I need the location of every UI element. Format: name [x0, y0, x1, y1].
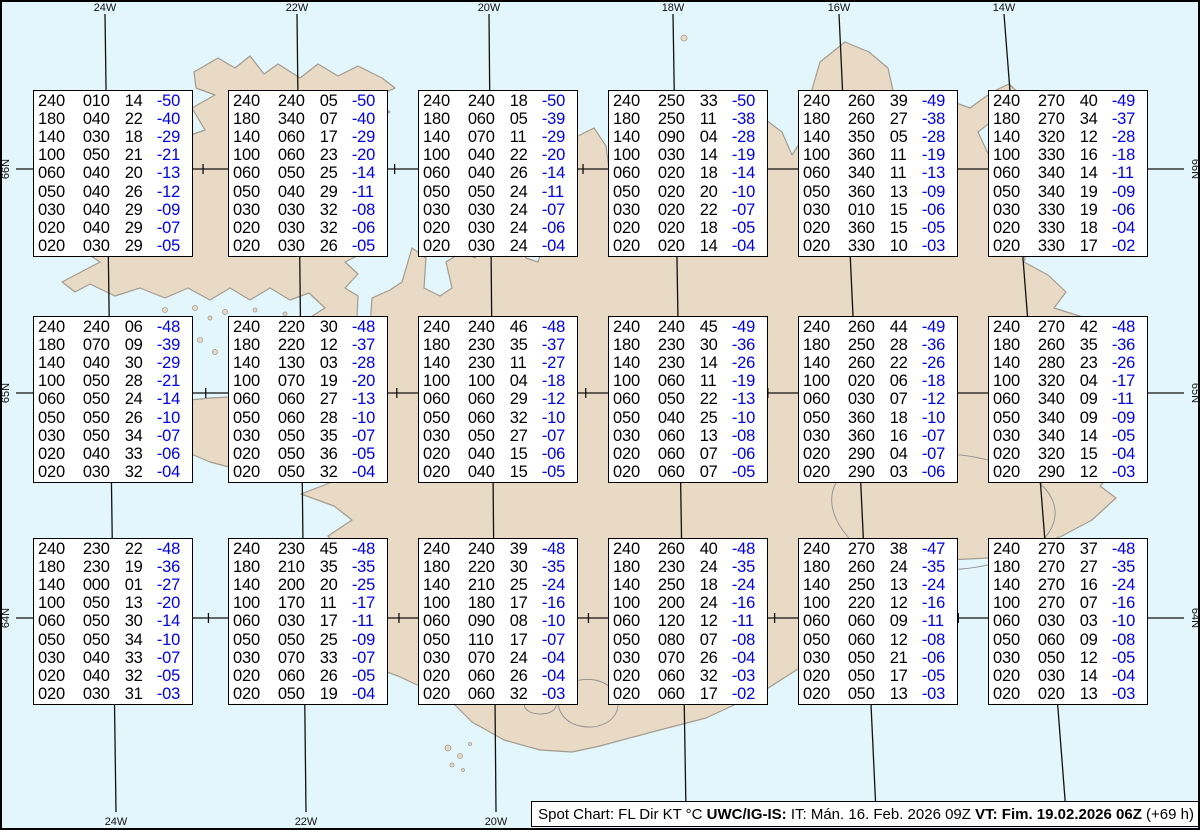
spot-data-row: 02004029-07	[38, 219, 189, 237]
spot-data-row: 10002006-18	[803, 372, 954, 390]
temperature-value: -10	[922, 409, 954, 427]
temperature-value: -18	[1112, 146, 1144, 164]
temperature-value: -10	[352, 409, 384, 427]
spot-data-row: 03005021-06	[803, 649, 954, 667]
wind-direction-value: 020	[658, 237, 700, 255]
temperature-value: -06	[542, 219, 574, 237]
temperature-value: -25	[352, 576, 384, 594]
spot-data-row: 18023024-35	[613, 558, 764, 576]
wind-direction-value: 070	[658, 649, 700, 667]
wind-direction-value: 250	[658, 92, 700, 110]
spot-data-row: 24027038-47	[803, 540, 954, 558]
temperature-value: -18	[542, 372, 574, 390]
temperature-value: -05	[352, 667, 384, 685]
wind-direction-value: 010	[83, 92, 125, 110]
wind-direction-value: 090	[468, 612, 510, 630]
wind-speed-value: 24	[510, 649, 542, 667]
spot-data-row: 14025013-24	[803, 576, 954, 594]
flight-level-value: 060	[423, 390, 468, 408]
wind-direction-value: 070	[278, 372, 320, 390]
wind-speed-value: 07	[890, 390, 922, 408]
temperature-value: -07	[732, 201, 764, 219]
spot-data-row: 02033010-03	[803, 237, 954, 255]
wind-direction-value: 050	[278, 427, 320, 445]
spot-data-row: 18022012-37	[233, 336, 384, 354]
temperature-value: -03	[157, 685, 189, 703]
temperature-value: -50	[542, 92, 574, 110]
wind-direction-value: 220	[278, 336, 320, 354]
wind-speed-value: 46	[510, 318, 542, 336]
flight-level-value: 020	[803, 667, 848, 685]
spot-data-row: 03003024-07	[423, 201, 574, 219]
wind-speed-value: 17	[320, 612, 352, 630]
wind-direction-value: 030	[278, 612, 320, 630]
flight-level-value: 140	[233, 576, 278, 594]
temperature-value: -10	[542, 409, 574, 427]
flight-level-value: 030	[38, 427, 83, 445]
wind-direction-value: 030	[468, 219, 510, 237]
flight-level-value: 030	[803, 427, 848, 445]
spot-data-row: 03034014-05	[993, 427, 1144, 445]
wind-speed-value: 27	[890, 110, 922, 128]
spot-data-row: 18007009-39	[38, 336, 189, 354]
wind-speed-value: 36	[320, 445, 352, 463]
spot-data-row: 24027040-49	[993, 92, 1144, 110]
spot-data-row: 05005024-11	[423, 183, 574, 201]
flight-level-value: 050	[423, 631, 468, 649]
spot-data-row: 18004022-40	[38, 110, 189, 128]
spot-data-row: 14023014-26	[613, 354, 764, 372]
flight-level-value: 050	[423, 183, 468, 201]
flight-level-value: 050	[803, 183, 848, 201]
wind-speed-value: 27	[1080, 558, 1112, 576]
spot-data-row: 03004029-09	[38, 201, 189, 219]
wind-speed-value: 19	[1080, 183, 1112, 201]
wind-direction-value: 260	[848, 354, 890, 372]
wind-speed-value: 23	[320, 146, 352, 164]
flight-level-value: 100	[233, 594, 278, 612]
flight-level-value: 030	[993, 201, 1038, 219]
temperature-value: -35	[922, 558, 954, 576]
spot-data-row: 03001015-06	[803, 201, 954, 219]
flight-level-value: 030	[613, 201, 658, 219]
spot-data-row: 02002018-05	[613, 219, 764, 237]
temperature-value: -07	[542, 201, 574, 219]
spot-data-row: 18026035-36	[993, 336, 1144, 354]
flight-level-value: 180	[613, 110, 658, 128]
temperature-value: -27	[542, 354, 574, 372]
temperature-value: -20	[352, 146, 384, 164]
wind-direction-value: 110	[468, 631, 510, 649]
temperature-value: -07	[352, 649, 384, 667]
flight-level-value: 180	[423, 336, 468, 354]
wind-direction-value: 030	[83, 237, 125, 255]
wind-speed-value: 20	[700, 183, 732, 201]
wind-direction-value: 050	[83, 594, 125, 612]
spot-data-row: 05006032-10	[423, 409, 574, 427]
wind-direction-value: 240	[83, 318, 125, 336]
wind-direction-value: 320	[1038, 445, 1080, 463]
temperature-value: -05	[922, 667, 954, 685]
temperature-value: -16	[732, 594, 764, 612]
wind-direction-value: 030	[1038, 667, 1080, 685]
spot-data-row: 06003017-11	[233, 612, 384, 630]
spot-data-row: 18027034-37	[993, 110, 1144, 128]
wind-direction-value: 050	[278, 463, 320, 481]
spot-data-row: 14000001-27	[38, 576, 189, 594]
flight-level-value: 020	[233, 667, 278, 685]
temperature-value: -29	[542, 128, 574, 146]
temperature-value: -29	[157, 354, 189, 372]
flight-level-value: 030	[38, 649, 83, 667]
wind-direction-value: 030	[278, 201, 320, 219]
spot-data-row: 06005022-13	[613, 390, 764, 408]
wind-direction-value: 040	[83, 445, 125, 463]
flight-level-value: 140	[803, 576, 848, 594]
wind-speed-value: 30	[510, 558, 542, 576]
wind-direction-value: 050	[83, 427, 125, 445]
wind-speed-value: 27	[320, 390, 352, 408]
temperature-value: -48	[542, 540, 574, 558]
temperature-value: -05	[1112, 649, 1144, 667]
spot-data-row: 05034009-09	[993, 409, 1144, 427]
spot-data-row: 02006026-04	[423, 667, 574, 685]
spot-data-row: 14021025-24	[423, 576, 574, 594]
spot-data-box: 24024006-4818007009-3914004030-291000502…	[33, 316, 193, 483]
spot-data-row: 06012012-11	[613, 612, 764, 630]
wind-direction-value: 340	[848, 164, 890, 182]
flight-level-value: 240	[423, 540, 468, 558]
wind-speed-value: 16	[890, 427, 922, 445]
spot-data-row: 02006032-03	[613, 667, 764, 685]
flight-level-value: 030	[233, 427, 278, 445]
flight-level-value: 100	[423, 594, 468, 612]
wind-speed-value: 32	[510, 409, 542, 427]
wind-direction-value: 040	[468, 146, 510, 164]
spot-data-row: 10006023-20	[233, 146, 384, 164]
spot-data-box: 24022030-4818022012-3714013003-281000701…	[228, 316, 388, 483]
flight-level-value: 180	[613, 558, 658, 576]
temperature-value: -08	[352, 201, 384, 219]
wind-speed-value: 45	[320, 540, 352, 558]
spot-data-box: 24024018-5018006005-3914007011-291000402…	[418, 90, 578, 257]
flight-level-value: 020	[233, 463, 278, 481]
spot-data-box: 24001014-5018004022-4014003018-291000502…	[33, 90, 193, 257]
temperature-value: -14	[157, 612, 189, 630]
temperature-value: -04	[352, 685, 384, 703]
flight-level-value: 180	[38, 336, 83, 354]
wind-direction-value: 060	[278, 390, 320, 408]
wind-direction-value: 230	[658, 558, 700, 576]
wind-direction-value: 240	[468, 92, 510, 110]
wind-direction-value: 330	[848, 237, 890, 255]
wind-direction-value: 340	[278, 110, 320, 128]
temperature-value: -06	[732, 445, 764, 463]
wind-direction-value: 120	[658, 612, 700, 630]
wind-speed-value: 32	[320, 201, 352, 219]
wind-speed-value: 33	[320, 649, 352, 667]
flight-level-value: 020	[38, 219, 83, 237]
meridian-label-top: 20W	[478, 2, 501, 14]
flight-level-value: 100	[38, 594, 83, 612]
temperature-value: -11	[1112, 390, 1144, 408]
spot-data-row: 02003031-03	[38, 685, 189, 703]
spot-data-row: 02003026-05	[233, 237, 384, 255]
spot-data-row: 02006007-05	[613, 463, 764, 481]
spot-data-row: 10007019-20	[233, 372, 384, 390]
spot-data-row: 02002013-03	[993, 685, 1144, 703]
wind-speed-value: 24	[510, 237, 542, 255]
spot-data-row: 24001014-50	[38, 92, 189, 110]
flight-level-value: 180	[803, 336, 848, 354]
flight-level-value: 240	[613, 92, 658, 110]
wind-speed-value: 19	[320, 685, 352, 703]
temperature-value: -05	[732, 219, 764, 237]
wind-direction-value: 030	[468, 237, 510, 255]
flight-level-value: 020	[993, 685, 1038, 703]
temperature-value: -11	[732, 612, 764, 630]
wind-speed-value: 03	[890, 463, 922, 481]
flight-level-value: 030	[423, 201, 468, 219]
spot-data-row: 06005030-14	[38, 612, 189, 630]
temperature-value: -39	[157, 336, 189, 354]
temperature-value: -07	[157, 219, 189, 237]
spot-data-row: 14027016-24	[993, 576, 1144, 594]
wind-direction-value: 020	[658, 164, 700, 182]
wind-speed-value: 32	[125, 463, 157, 481]
spot-data-row: 06034009-11	[993, 390, 1144, 408]
spot-data-row: 10005013-20	[38, 594, 189, 612]
meridian-label-bottom: 24W	[105, 816, 128, 828]
wind-direction-value: 030	[278, 219, 320, 237]
wind-direction-value: 320	[1038, 128, 1080, 146]
wind-direction-value: 060	[658, 372, 700, 390]
temperature-value: -03	[732, 667, 764, 685]
flight-level-value: 060	[613, 612, 658, 630]
spot-data-row: 10033016-18	[993, 146, 1144, 164]
flight-level-value: 030	[233, 649, 278, 667]
spot-data-row: 03005034-07	[38, 427, 189, 445]
wind-speed-value: 13	[700, 427, 732, 445]
spot-data-row: 03007033-07	[233, 649, 384, 667]
temperature-value: -28	[732, 128, 764, 146]
flight-level-value: 180	[993, 558, 1038, 576]
flight-level-value: 100	[613, 146, 658, 164]
flight-level-value: 060	[993, 612, 1038, 630]
wind-speed-value: 18	[700, 219, 732, 237]
spot-data-box: 24026040-4818023024-3514025018-241002002…	[608, 538, 768, 705]
flight-level-value: 140	[38, 354, 83, 372]
wind-speed-value: 24	[510, 183, 542, 201]
wind-direction-value: 030	[658, 146, 700, 164]
spot-data-row: 03005035-07	[233, 427, 384, 445]
wind-direction-value: 040	[83, 201, 125, 219]
flight-level-value: 020	[613, 463, 658, 481]
spot-data-row: 18025011-38	[613, 110, 764, 128]
spot-data-row: 02005013-03	[803, 685, 954, 703]
wind-direction-value: 020	[848, 372, 890, 390]
spot-data-row: 02005017-05	[803, 667, 954, 685]
wind-speed-value: 42	[1080, 318, 1112, 336]
spot-data-row: 06003007-12	[803, 390, 954, 408]
flight-level-value: 050	[423, 409, 468, 427]
temperature-value: -05	[352, 445, 384, 463]
wind-direction-value: 030	[83, 463, 125, 481]
temperature-value: -06	[922, 201, 954, 219]
flight-level-value: 020	[613, 445, 658, 463]
flight-level-value: 020	[993, 445, 1038, 463]
spot-data-row: 05002020-10	[613, 183, 764, 201]
temperature-value: -06	[922, 649, 954, 667]
wind-direction-value: 070	[278, 649, 320, 667]
temperature-value: -18	[922, 372, 954, 390]
wind-speed-value: 30	[125, 612, 157, 630]
flight-level-value: 020	[233, 237, 278, 255]
temperature-value: -06	[542, 445, 574, 463]
spot-data-row: 03004033-07	[38, 649, 189, 667]
wind-speed-value: 25	[510, 576, 542, 594]
meridian-label-top: 24W	[94, 2, 117, 14]
spot-data-row: 10020024-16	[613, 594, 764, 612]
spot-data-row: 02006007-06	[613, 445, 764, 463]
wind-speed-value: 24	[125, 390, 157, 408]
flight-level-value: 020	[993, 237, 1038, 255]
temperature-value: -09	[1112, 409, 1144, 427]
wind-direction-value: 220	[468, 558, 510, 576]
flight-level-value: 100	[993, 594, 1038, 612]
wind-direction-value: 320	[1038, 372, 1080, 390]
spot-data-row: 02004032-05	[38, 667, 189, 685]
wind-speed-value: 11	[700, 372, 732, 390]
temperature-value: -07	[922, 427, 954, 445]
wind-speed-value: 22	[890, 354, 922, 372]
temperature-value: -28	[922, 128, 954, 146]
flight-level-value: 050	[993, 631, 1038, 649]
flight-level-value: 240	[233, 540, 278, 558]
spot-data-row: 02004033-06	[38, 445, 189, 463]
flight-level-value: 060	[803, 390, 848, 408]
wind-speed-value: 08	[510, 612, 542, 630]
wind-direction-value: 020	[1038, 685, 1080, 703]
spot-data-box: 24024045-4918023030-3614023014-261000601…	[608, 316, 768, 483]
wind-direction-value: 070	[468, 128, 510, 146]
wind-speed-value: 07	[320, 110, 352, 128]
wind-direction-value: 050	[848, 649, 890, 667]
wind-direction-value: 290	[848, 445, 890, 463]
flight-level-value: 020	[233, 219, 278, 237]
temperature-value: -48	[1112, 318, 1144, 336]
spot-data-row: 03005027-07	[423, 427, 574, 445]
spot-data-row: 24024018-50	[423, 92, 574, 110]
wind-speed-value: 24	[510, 219, 542, 237]
flight-level-value: 140	[233, 354, 278, 372]
wind-direction-value: 270	[1038, 576, 1080, 594]
wind-direction-value: 210	[278, 558, 320, 576]
flight-level-value: 020	[38, 463, 83, 481]
flight-level-value: 030	[613, 427, 658, 445]
wind-direction-value: 050	[1038, 649, 1080, 667]
spot-data-row: 18021035-35	[233, 558, 384, 576]
wind-speed-value: 16	[1080, 146, 1112, 164]
wind-speed-value: 33	[125, 649, 157, 667]
wind-speed-value: 34	[1080, 110, 1112, 128]
chart-info-text: (+69 h)	[1142, 806, 1194, 823]
wind-speed-value: 26	[510, 164, 542, 182]
spot-data-row: 02029003-06	[803, 463, 954, 481]
wind-speed-value: 04	[1080, 372, 1112, 390]
temperature-value: -04	[542, 667, 574, 685]
temperature-value: -49	[732, 318, 764, 336]
flight-level-value: 180	[423, 110, 468, 128]
flight-level-value: 050	[803, 409, 848, 427]
flight-level-value: 140	[803, 354, 848, 372]
wind-speed-value: 14	[700, 354, 732, 372]
flight-level-value: 060	[993, 390, 1038, 408]
wind-speed-value: 26	[700, 649, 732, 667]
wind-speed-value: 11	[510, 128, 542, 146]
wind-direction-value: 240	[658, 318, 700, 336]
spot-data-row: 10005028-21	[38, 372, 189, 390]
temperature-value: -28	[352, 354, 384, 372]
wind-direction-value: 270	[1038, 540, 1080, 558]
temperature-value: -03	[922, 237, 954, 255]
wind-direction-value: 330	[1038, 201, 1080, 219]
spot-data-row: 02002014-04	[613, 237, 764, 255]
wind-direction-value: 050	[83, 409, 125, 427]
wind-direction-value: 040	[83, 110, 125, 128]
wind-direction-value: 340	[1038, 409, 1080, 427]
temperature-value: -27	[157, 576, 189, 594]
weather-spot-chart: 24W24W22W22W20W20W18W18W16W16W14W14W66N6…	[0, 0, 1200, 830]
meridian-label-top: 18W	[662, 2, 685, 14]
temperature-value: -08	[732, 631, 764, 649]
flight-level-value: 140	[803, 128, 848, 146]
flight-level-value: 100	[803, 146, 848, 164]
flight-level-value: 020	[803, 219, 848, 237]
temperature-value: -20	[352, 372, 384, 390]
wind-speed-value: 26	[510, 667, 542, 685]
spot-data-row: 10010004-18	[423, 372, 574, 390]
wind-speed-value: 18	[125, 128, 157, 146]
spot-data-row: 02033018-04	[993, 219, 1144, 237]
wind-speed-value: 27	[510, 427, 542, 445]
spot-data-row: 06006029-12	[423, 390, 574, 408]
wind-speed-value: 09	[1080, 631, 1112, 649]
spot-data-row: 02029004-07	[803, 445, 954, 463]
temperature-value: -11	[352, 612, 384, 630]
wind-direction-value: 260	[848, 558, 890, 576]
wind-direction-value: 040	[83, 354, 125, 372]
wind-direction-value: 050	[278, 685, 320, 703]
spot-data-row: 05004025-10	[613, 409, 764, 427]
spot-data-row: 06003003-10	[993, 612, 1144, 630]
wind-speed-value: 22	[700, 201, 732, 219]
chart-info-bold-text: UWC/IG-IS:	[707, 806, 787, 823]
temperature-value: -10	[732, 409, 764, 427]
flight-level-value: 020	[613, 237, 658, 255]
flight-level-value: 060	[38, 390, 83, 408]
wind-direction-value: 330	[1038, 219, 1080, 237]
spot-data-row: 10036011-19	[803, 146, 954, 164]
flight-level-value: 180	[803, 110, 848, 128]
wind-speed-value: 18	[700, 164, 732, 182]
spot-data-row: 05006028-10	[233, 409, 384, 427]
temperature-value: -06	[922, 463, 954, 481]
flight-level-value: 240	[38, 540, 83, 558]
spot-data-row: 02003032-06	[233, 219, 384, 237]
flight-level-value: 240	[803, 318, 848, 336]
flight-level-value: 050	[613, 409, 658, 427]
